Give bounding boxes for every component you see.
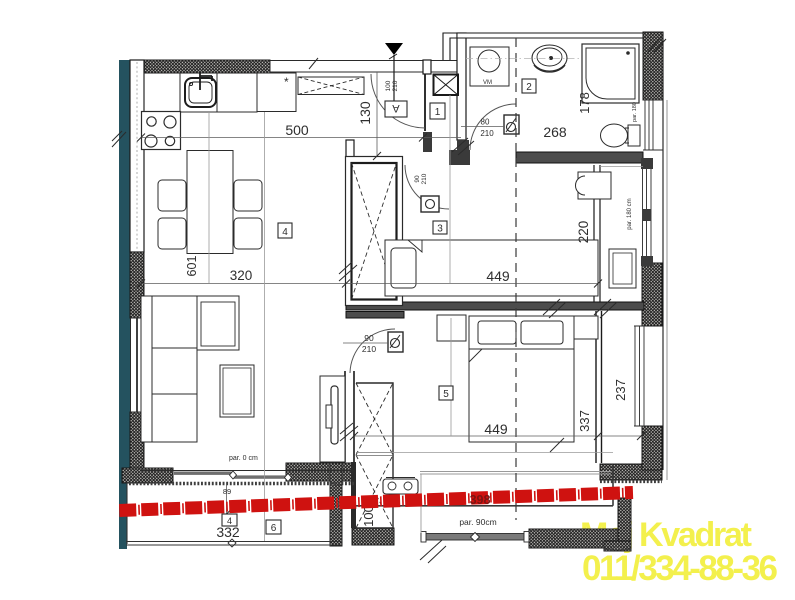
svg-text:130: 130	[357, 101, 373, 125]
svg-text:237: 237	[613, 379, 628, 401]
svg-text:par. 180 cm: par. 180 cm	[627, 198, 633, 229]
svg-text:par. 0 cm: par. 0 cm	[229, 455, 258, 462]
svg-text:210: 210	[480, 129, 494, 138]
svg-text:320: 320	[230, 268, 253, 283]
svg-text:90: 90	[414, 175, 421, 183]
svg-text:6: 6	[271, 523, 277, 534]
svg-text:220: 220	[576, 221, 591, 244]
svg-text:80: 80	[481, 118, 490, 127]
svg-text:268: 268	[543, 124, 567, 140]
svg-text:100: 100	[385, 80, 392, 91]
svg-text:210: 210	[421, 173, 428, 184]
svg-text:601: 601	[185, 256, 199, 277]
svg-text:VM: VM	[483, 80, 492, 86]
svg-text:par. 180: par. 180	[632, 102, 638, 122]
svg-text:398: 398	[470, 493, 491, 507]
svg-text:011/334-88-36: 011/334-88-36	[582, 549, 778, 588]
svg-text:3: 3	[437, 224, 443, 235]
svg-text:5: 5	[443, 389, 449, 400]
svg-text:178: 178	[577, 92, 592, 114]
svg-text:210: 210	[362, 344, 376, 354]
svg-text:4: 4	[227, 516, 232, 526]
svg-text:210: 210	[392, 80, 399, 91]
svg-text:2: 2	[526, 82, 532, 93]
svg-text:89: 89	[223, 487, 231, 496]
svg-text:1: 1	[435, 107, 441, 118]
svg-text:A: A	[392, 102, 400, 114]
svg-text:90: 90	[364, 333, 374, 343]
svg-text:*: *	[284, 75, 289, 89]
svg-text:449: 449	[486, 268, 510, 284]
svg-text:500: 500	[285, 122, 309, 138]
svg-text:337: 337	[577, 410, 592, 432]
svg-text:par. 90cm: par. 90cm	[459, 517, 496, 527]
svg-text:449: 449	[484, 421, 508, 437]
svg-text:4: 4	[282, 227, 288, 238]
